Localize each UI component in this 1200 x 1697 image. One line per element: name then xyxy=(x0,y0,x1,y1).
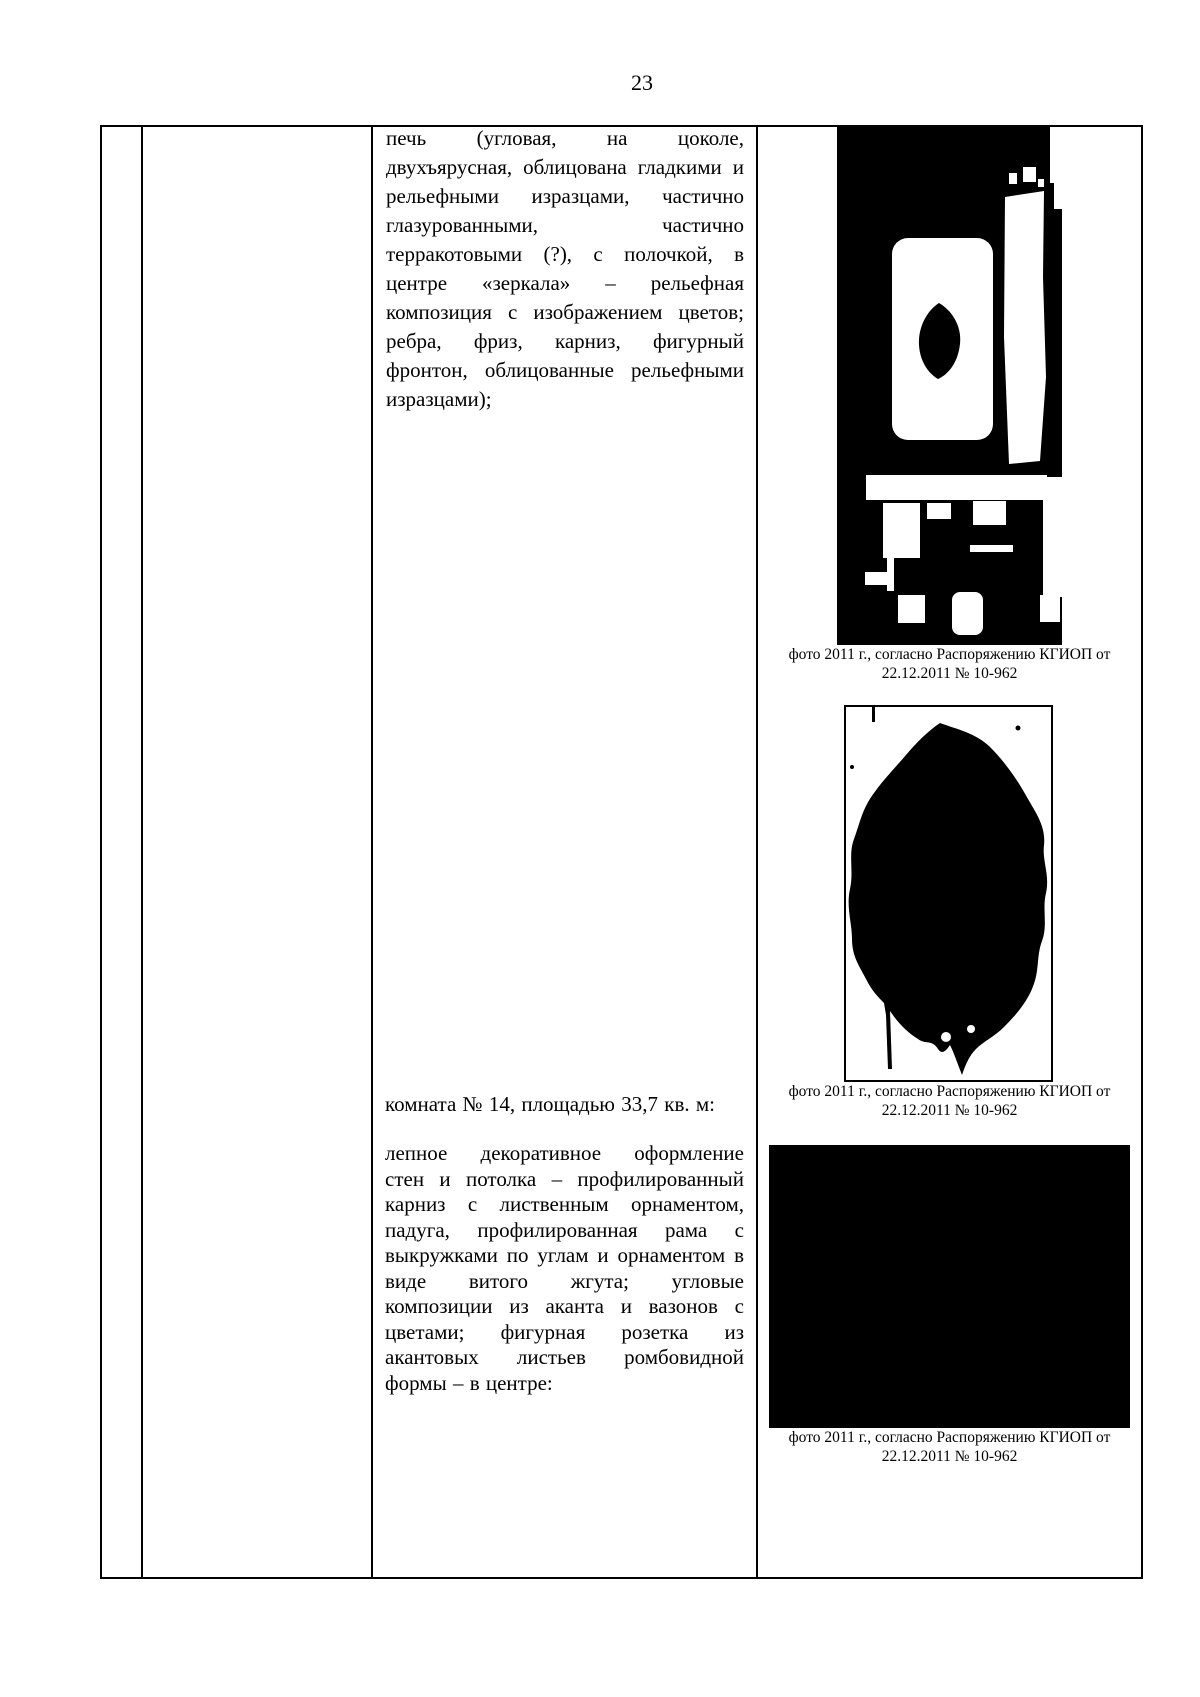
photo-caption-3: фото 2011 г., согласно Распоряжению КГИО… xyxy=(756,1428,1143,1466)
text-line: акантовых листьев ромбовидной xyxy=(385,1345,744,1371)
text-line: карниз с лиственным орнаментом, xyxy=(385,1192,744,1218)
text-line: центре «зеркала» – рельефная xyxy=(386,269,744,298)
text-line: терракотовыми (?), с полочкой, в xyxy=(386,240,744,269)
photo-caption-2: фото 2011 г., согласно Распоряжению КГИО… xyxy=(756,1082,1143,1120)
text-line: композиции из аканта и вазонов с xyxy=(385,1294,744,1320)
text-line: виде витого жгута; угловые xyxy=(385,1269,744,1295)
table-column-divider-3 xyxy=(756,125,758,1579)
text-line: рельефными изразцами, частично xyxy=(386,182,744,211)
room-heading: комната № 14, площадью 33,7 кв. м: xyxy=(385,1092,744,1117)
stove-photo xyxy=(837,127,1062,645)
table-column-divider-1 xyxy=(141,125,143,1579)
table-right-border xyxy=(1141,125,1143,1579)
text-line: цветами; фигурная розетка из xyxy=(385,1320,744,1346)
text-line: фото 2011 г., согласно Распоряжению КГИО… xyxy=(756,645,1143,664)
stove-description-paragraph: печь (угловая, на цоколе,двухъярусная, о… xyxy=(386,124,744,414)
text-line: падуга, профилированная рама с xyxy=(385,1218,744,1244)
text-line: глазурованными, частично xyxy=(386,211,744,240)
text-line: ребра, фриз, карниз, фигурный xyxy=(386,327,744,356)
dark-interior-photo xyxy=(769,1145,1130,1428)
rosette-photo xyxy=(844,705,1053,1082)
page-number: 23 xyxy=(600,72,684,94)
text-line: 22.12.2011 № 10-962 xyxy=(756,1447,1143,1466)
text-line: 22.12.2011 № 10-962 xyxy=(756,1101,1143,1120)
table-bottom-border xyxy=(100,1577,1143,1579)
text-line: фронтон, облицованные рельефными xyxy=(386,356,744,385)
text-line: стен и потолка – профилированный xyxy=(385,1167,744,1193)
text-line: 22.12.2011 № 10-962 xyxy=(756,664,1143,683)
text-line: композиция с изображением цветов; xyxy=(386,298,744,327)
text-line: изразцами); xyxy=(386,385,744,414)
text-line: двухъярусная, облицована гладкими и xyxy=(386,153,744,182)
text-line: фото 2011 г., согласно Распоряжению КГИО… xyxy=(756,1082,1143,1101)
text-line: печь (угловая, на цоколе, xyxy=(386,124,744,153)
text-line: лепное декоративное оформление xyxy=(385,1141,744,1167)
document-page: 23 печь (угловая, на цоколе,двухъярусная… xyxy=(0,0,1200,1697)
table-column-divider-2 xyxy=(371,125,373,1579)
photo-caption-1: фото 2011 г., согласно Распоряжению КГИО… xyxy=(756,645,1143,683)
table-left-border xyxy=(100,125,102,1579)
text-line: формы – в центре: xyxy=(385,1371,744,1397)
decor-description-paragraph: лепное декоративное оформлениестен и пот… xyxy=(385,1141,744,1396)
text-line: выкружками по углам и орнаментом в xyxy=(385,1243,744,1269)
text-line: фото 2011 г., согласно Распоряжению КГИО… xyxy=(756,1428,1143,1447)
